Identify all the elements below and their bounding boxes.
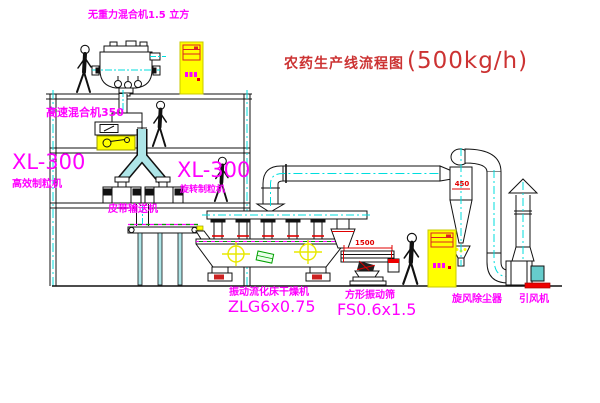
worker-figure	[403, 233, 418, 283]
control-cabinet-right	[428, 230, 456, 287]
title-text: 农药生产线流程图	[284, 53, 404, 73]
label-fan: 引风机	[519, 295, 549, 305]
label-dryer-model: ZLG6x0.75	[228, 299, 316, 315]
process-flow-diagram: 农药生产线流程图 (500kg/h) 无重力混合机1.5 立方 高速混合机350…	[0, 0, 600, 403]
label-belt-conveyor: 皮带输送机	[108, 205, 158, 215]
exhaust-duct	[257, 164, 452, 211]
title-capacity: (500kg/h)	[407, 48, 528, 74]
dimension-cyclone-width: 450	[453, 181, 471, 188]
fan-drawing	[506, 261, 550, 288]
belt-conveyor-drawing	[128, 225, 214, 286]
worker-figure	[153, 101, 166, 146]
label-cyclone: 旋风除尘器	[452, 295, 502, 305]
granulator-left-drawing	[103, 177, 141, 203]
label-zero-gravity-mixer: 无重力混合机1.5 立方	[88, 11, 189, 21]
label-high-speed-mixer: 高速混合机350	[46, 107, 124, 118]
label-granulator-left-name: 高效制粒机	[12, 180, 62, 190]
zero-gravity-mixer-drawing	[92, 41, 166, 96]
control-cabinet-top	[180, 42, 203, 94]
worker-figure	[77, 45, 91, 92]
label-granulator-right-model: XL-300	[177, 160, 250, 181]
vibrating-sieve-drawing	[331, 219, 399, 285]
dimension-sieve-length: 1500	[355, 240, 374, 247]
diagram-title: 农药生产线流程图 (500kg/h)	[284, 48, 528, 74]
label-granulator-left-model: XL-300	[12, 152, 85, 173]
label-granulator-right-name: 旋转制粒机	[180, 186, 225, 195]
label-sieve-model: FS0.6x1.5	[337, 302, 416, 318]
